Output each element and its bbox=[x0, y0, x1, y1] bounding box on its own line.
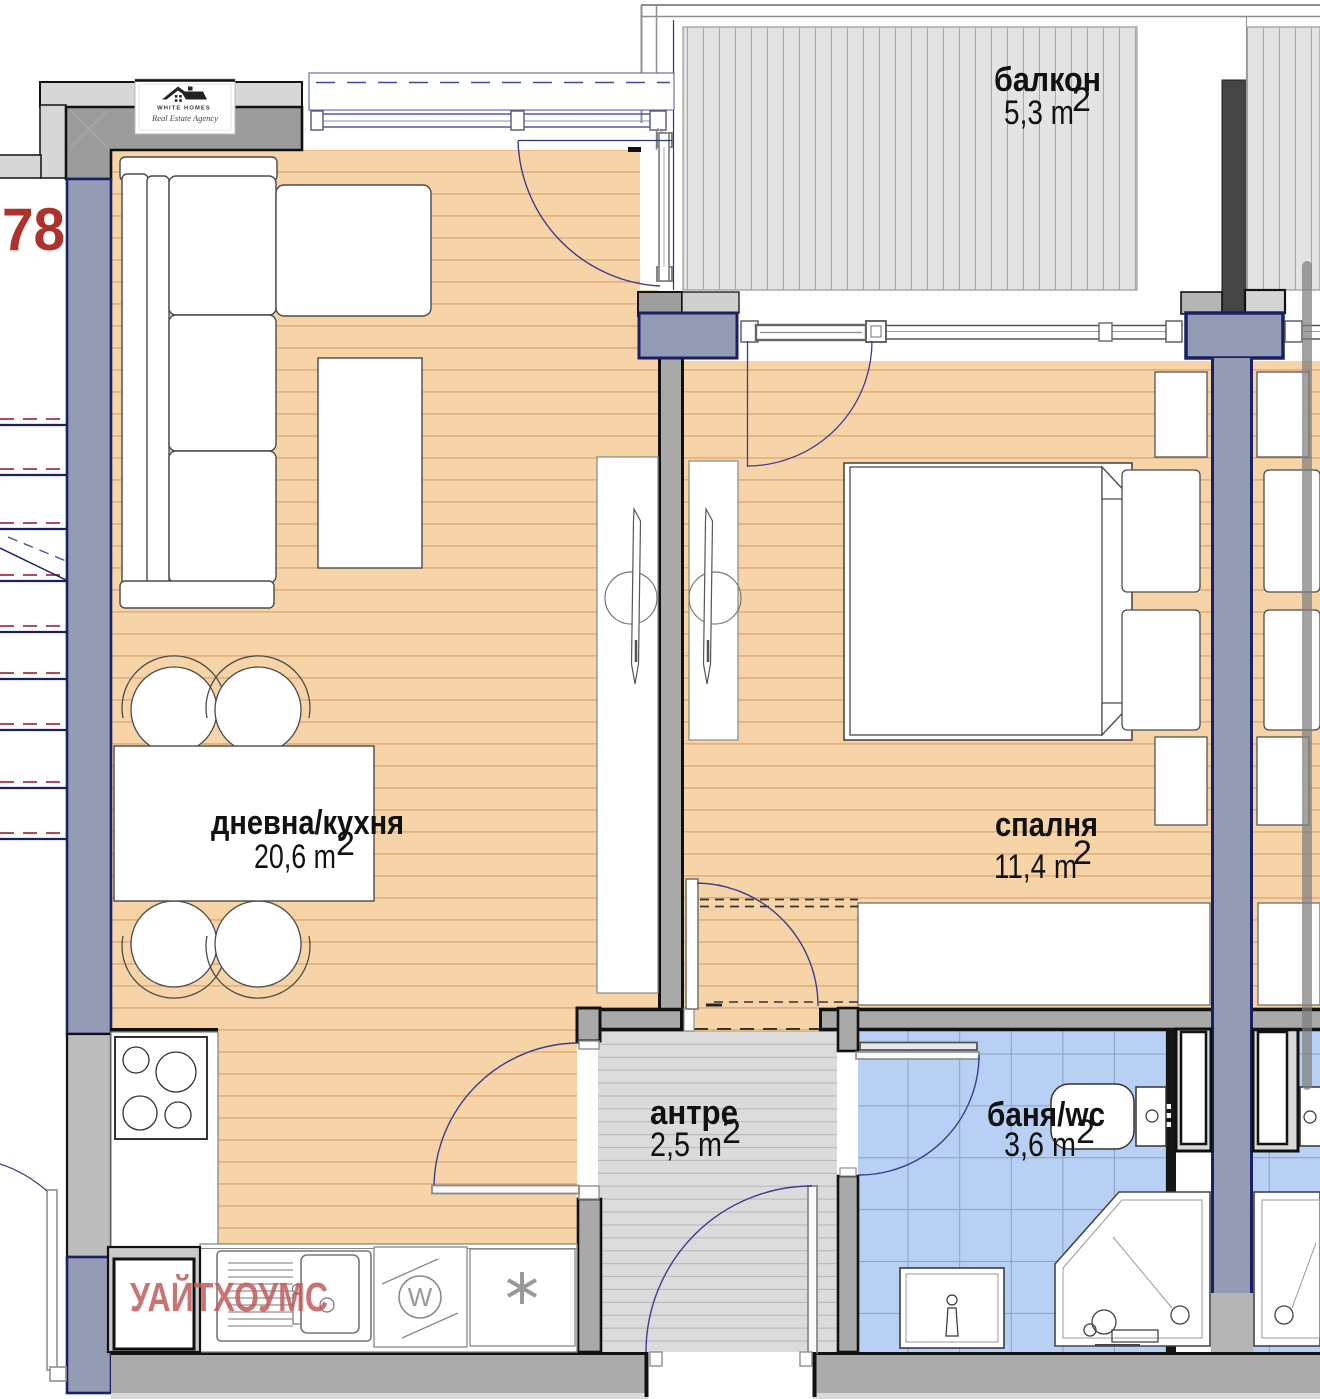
svg-text:2: 2 bbox=[1072, 81, 1091, 119]
svg-text:WHITE HOMES: WHITE HOMES bbox=[157, 106, 211, 112]
svg-text:Real Estate Agency: Real Estate Agency bbox=[151, 113, 218, 123]
svg-text:W: W bbox=[408, 1282, 433, 1312]
svg-text:5,3 m: 5,3 m bbox=[1004, 94, 1074, 132]
svg-text:2: 2 bbox=[722, 1113, 741, 1151]
svg-text:78: 78 bbox=[2, 196, 65, 263]
svg-text:2,5 m: 2,5 m bbox=[650, 1126, 722, 1164]
svg-text:2: 2 bbox=[1076, 1113, 1095, 1151]
svg-text:2: 2 bbox=[1073, 834, 1092, 872]
svg-text:11,4 m: 11,4 m bbox=[994, 848, 1077, 886]
svg-text:3,6 m: 3,6 m bbox=[1004, 1126, 1076, 1164]
svg-text:УАЙТХОУМС: УАЙТХОУМС bbox=[130, 1274, 328, 1320]
svg-text:дневна/кухня: дневна/кухня bbox=[211, 804, 404, 842]
svg-text:20,6 m: 20,6 m bbox=[254, 838, 336, 876]
svg-text:2: 2 bbox=[336, 825, 355, 863]
